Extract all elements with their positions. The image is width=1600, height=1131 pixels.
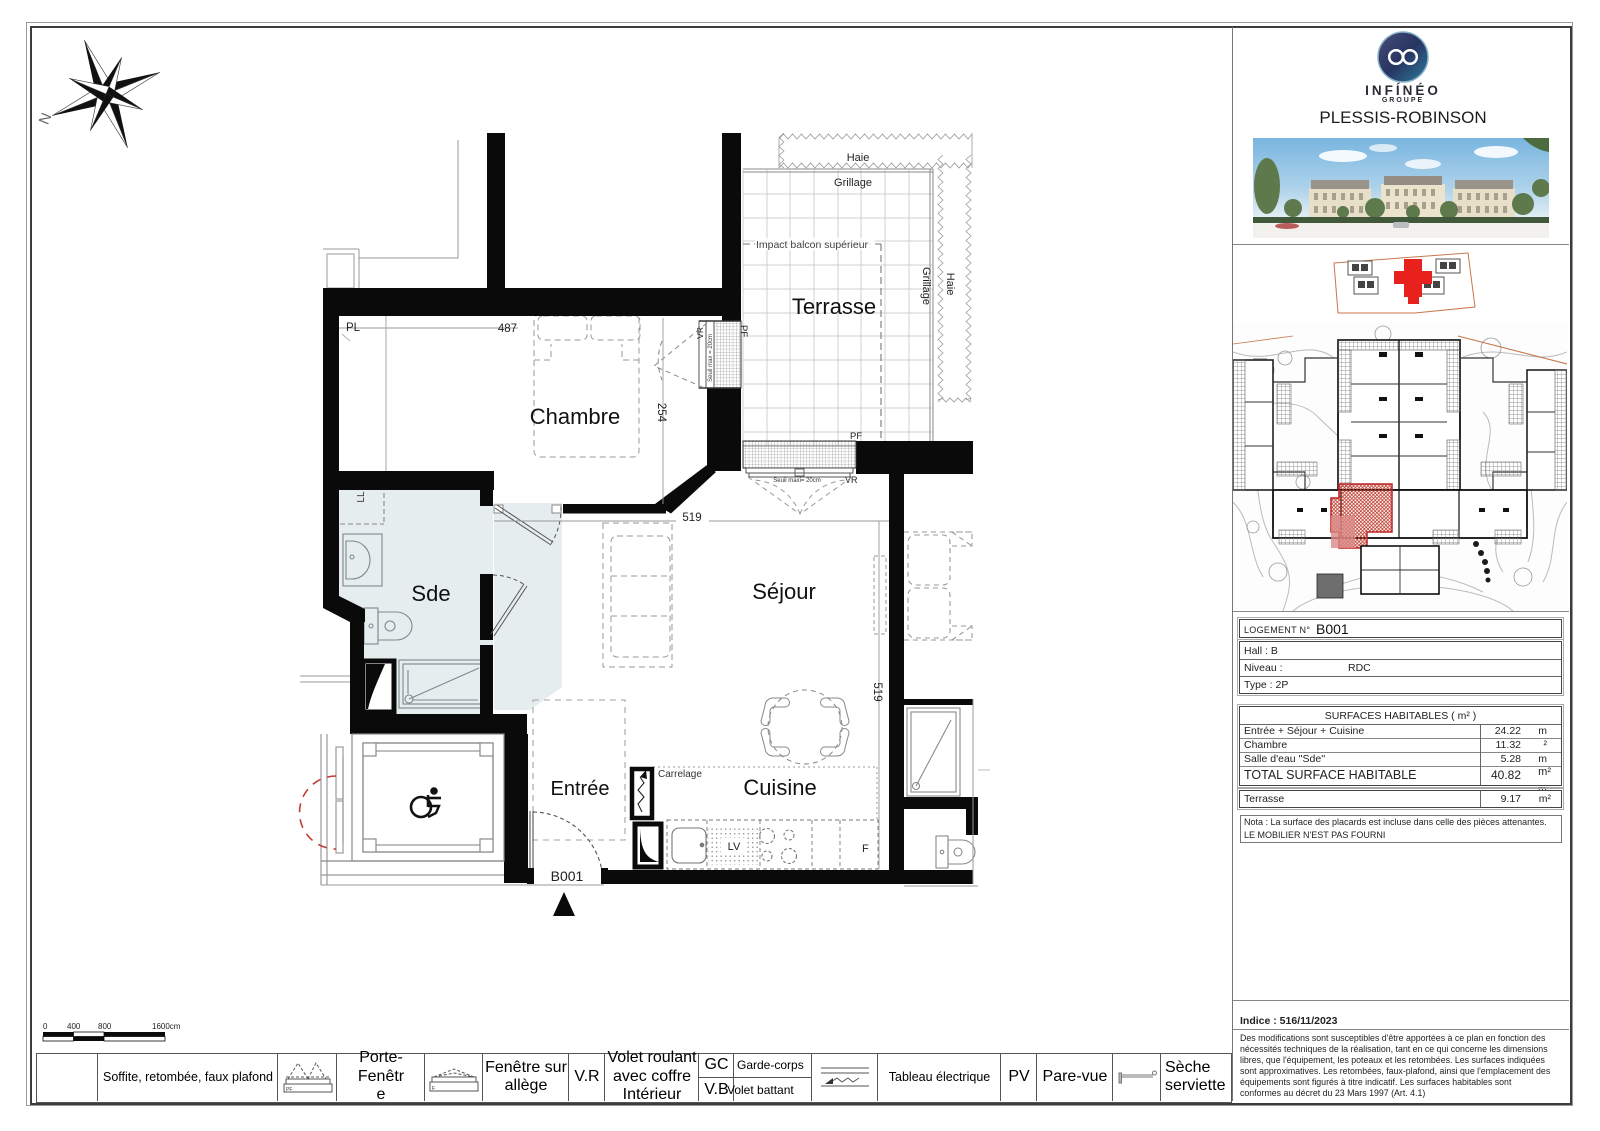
svg-text:PF: PF <box>738 325 749 337</box>
svg-text:VR: VR <box>845 475 858 485</box>
svg-text:Cuisine: Cuisine <box>743 775 816 800</box>
svg-text:Grillage: Grillage <box>920 267 932 305</box>
svg-text:Terrasse: Terrasse <box>792 294 876 319</box>
svg-text:487: 487 <box>498 323 517 335</box>
svg-text:PF: PF <box>850 431 862 442</box>
svg-text:Seuil maxi= 20cm: Seuil maxi= 20cm <box>773 478 821 484</box>
svg-text:PF: PF <box>286 1087 292 1093</box>
svg-text:254: 254 <box>655 403 667 423</box>
svg-text:1600cm: 1600cm <box>152 1022 181 1031</box>
svg-text:519: 519 <box>871 682 883 701</box>
svg-text:Séjour: Séjour <box>752 579 816 604</box>
svg-text:Chambre: Chambre <box>530 404 620 429</box>
svg-text:800: 800 <box>98 1022 112 1031</box>
svg-text:Grillage: Grillage <box>834 177 872 189</box>
svg-text:Sde: Sde <box>411 581 450 606</box>
svg-text:PL: PL <box>346 322 361 334</box>
svg-text:Entrée: Entrée <box>551 778 610 800</box>
svg-text:519: 519 <box>682 512 701 524</box>
svg-text:B001: B001 <box>551 868 584 884</box>
svg-text:Impact balcon supérieur: Impact balcon supérieur <box>756 239 869 251</box>
svg-text:Seuil max = 20cm: Seuil max = 20cm <box>708 334 714 382</box>
svg-text:0: 0 <box>43 1022 48 1031</box>
svg-text:LV: LV <box>728 841 741 853</box>
svg-text:Carrelage: Carrelage <box>658 769 702 780</box>
svg-text:N: N <box>36 111 56 127</box>
svg-text:LL: LL <box>356 491 367 503</box>
svg-text:F: F <box>432 1086 435 1092</box>
svg-text:Haie: Haie <box>847 152 870 164</box>
svg-text:Haie: Haie <box>944 273 956 296</box>
svg-text:F: F <box>862 843 869 855</box>
svg-text:400: 400 <box>67 1022 81 1031</box>
